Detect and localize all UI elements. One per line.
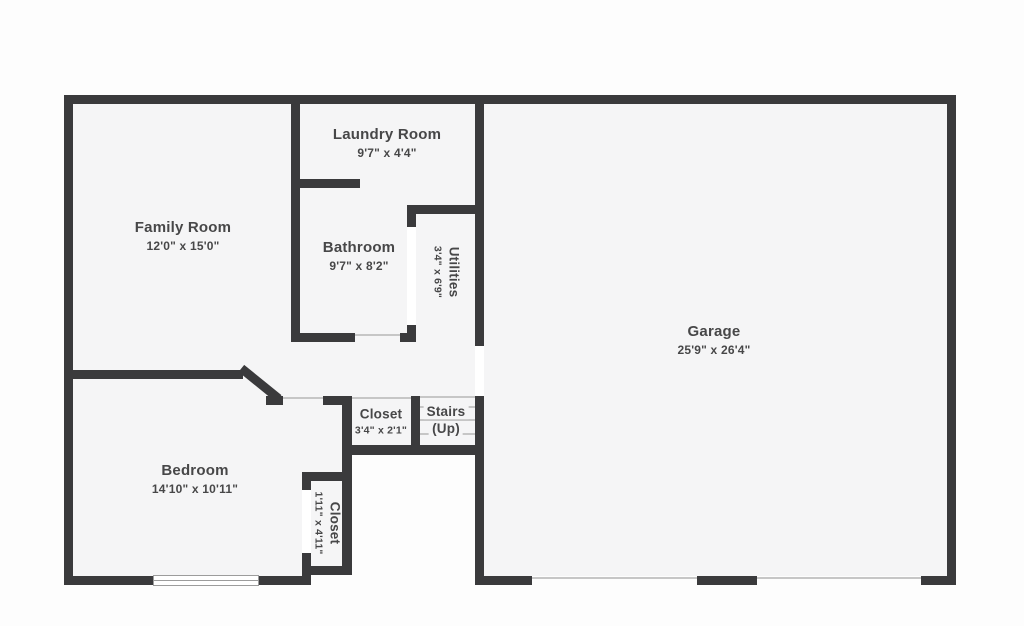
- door-opening-bedroom-closet: [302, 490, 311, 553]
- room-dims: 3'4" x 6'9": [430, 246, 444, 298]
- room-label-stairs: Stairs (Up): [424, 404, 469, 438]
- room-label-family: Family Room 12'0" x 15'0": [135, 218, 231, 254]
- floor-plan: Laundry Room 9'7" x 4'4" Family Room 12'…: [0, 0, 1024, 626]
- floor-interior: [73, 104, 947, 576]
- wall-laundry-bathroom-divider: [291, 179, 360, 188]
- wall-bedroom-top: [64, 370, 243, 379]
- wall-garage-left-lower: [475, 396, 484, 585]
- room-name: Bedroom: [152, 461, 238, 481]
- room-label-laundry: Laundry Room 9'7" x 4'4": [333, 125, 441, 161]
- room-name: Closet: [355, 406, 407, 423]
- wall-garage-left-upper: [475, 95, 484, 346]
- wall-bedroom-right: [342, 396, 352, 575]
- room-label-garage: Garage 25'9" x 26'4": [677, 322, 750, 358]
- room-label-bathroom: Bathroom 9'7" x 8'2": [323, 238, 395, 274]
- garage-door-opening: [532, 577, 697, 579]
- door-opening-garage: [475, 346, 484, 396]
- room-dims: 12'0" x 15'0": [135, 237, 231, 254]
- wall-outer-left: [64, 95, 73, 585]
- wall-bathroom-bottom: [291, 333, 355, 342]
- wall-outer-bottom-garage: [697, 576, 757, 585]
- room-dims: 9'7" x 8'2": [323, 257, 395, 274]
- room-label-bedroom: Bedroom 14'10" x 10'11": [152, 461, 238, 497]
- stairs-top-line: [420, 396, 475, 398]
- wall-bathroom-bottom: [400, 333, 416, 342]
- room-label-closet-hall: Closet 3'4" x 2'1": [355, 406, 407, 437]
- room-dims: 25'9" x 26'4": [677, 341, 750, 358]
- door-opening-bathroom: [355, 334, 400, 336]
- wall-outer-bottom-garage: [921, 576, 956, 585]
- room-name: Closet: [326, 491, 343, 554]
- wall-utilities-top: [407, 205, 484, 214]
- wall-outer-right: [947, 95, 956, 585]
- door-opening-bedroom: [283, 397, 323, 399]
- wall-laundry-left: [291, 95, 300, 342]
- window-mid-line: [154, 580, 258, 581]
- wall-stairs-bottom: [342, 445, 484, 455]
- wall-bedroom-closet-bottom: [302, 566, 352, 575]
- wall-utilities-left: [407, 205, 416, 227]
- room-dims: 14'10" x 10'11": [152, 480, 238, 497]
- room-name: Family Room: [135, 218, 231, 238]
- room-dims: 9'7" x 4'4": [333, 144, 441, 161]
- room-name: Laundry Room: [333, 125, 441, 145]
- room-name: Utilities: [445, 246, 462, 298]
- wall-bedroom-closet-left: [302, 472, 311, 490]
- wall-step: [302, 575, 311, 585]
- exterior-notch: [311, 575, 352, 586]
- room-dims: 1'11" x 4'11": [311, 491, 325, 554]
- room-name: Garage: [677, 322, 750, 342]
- room-dims: 3'4" x 2'1": [355, 423, 407, 437]
- room-label-utilities: Utilities 3'4" x 6'9": [430, 246, 461, 298]
- room-label-closet-bedroom: Closet 1'11" x 4'11": [311, 491, 342, 554]
- garage-door-opening: [757, 577, 921, 579]
- closet-opening: [352, 397, 411, 399]
- stairs-direction: (Up): [424, 421, 469, 438]
- wall-hall-stub: [266, 396, 283, 405]
- room-name: Bathroom: [323, 238, 395, 258]
- room-name: Stairs: [424, 404, 469, 421]
- window: [153, 575, 259, 586]
- door-opening-utilities: [407, 227, 416, 325]
- exterior-notch: [352, 455, 475, 576]
- wall-outer-top: [64, 95, 956, 104]
